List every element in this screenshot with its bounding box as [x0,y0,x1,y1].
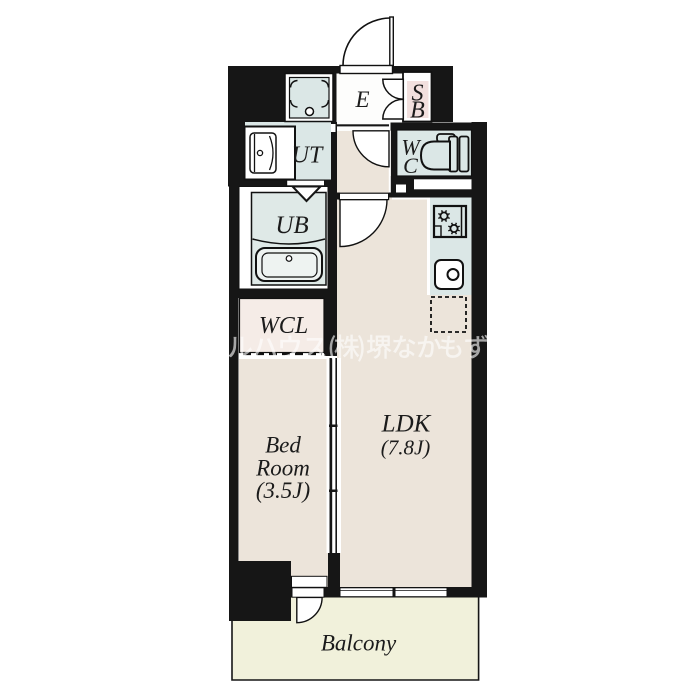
svg-text:WCL: WCL [259,313,308,339]
svg-text:(3.5J): (3.5J) [256,478,310,503]
svg-text:E: E [354,87,369,112]
svg-text:(7.8J): (7.8J) [381,436,431,460]
svg-text:UB: UB [275,212,308,239]
svg-text:Room: Room [255,456,310,481]
svg-text:Balcony: Balcony [321,631,397,656]
svg-text:UT: UT [292,143,324,169]
svg-text:C: C [403,153,418,178]
svg-text:LDK: LDK [381,411,432,438]
svg-text:Bed: Bed [265,433,301,458]
svg-text:B: B [410,98,425,124]
